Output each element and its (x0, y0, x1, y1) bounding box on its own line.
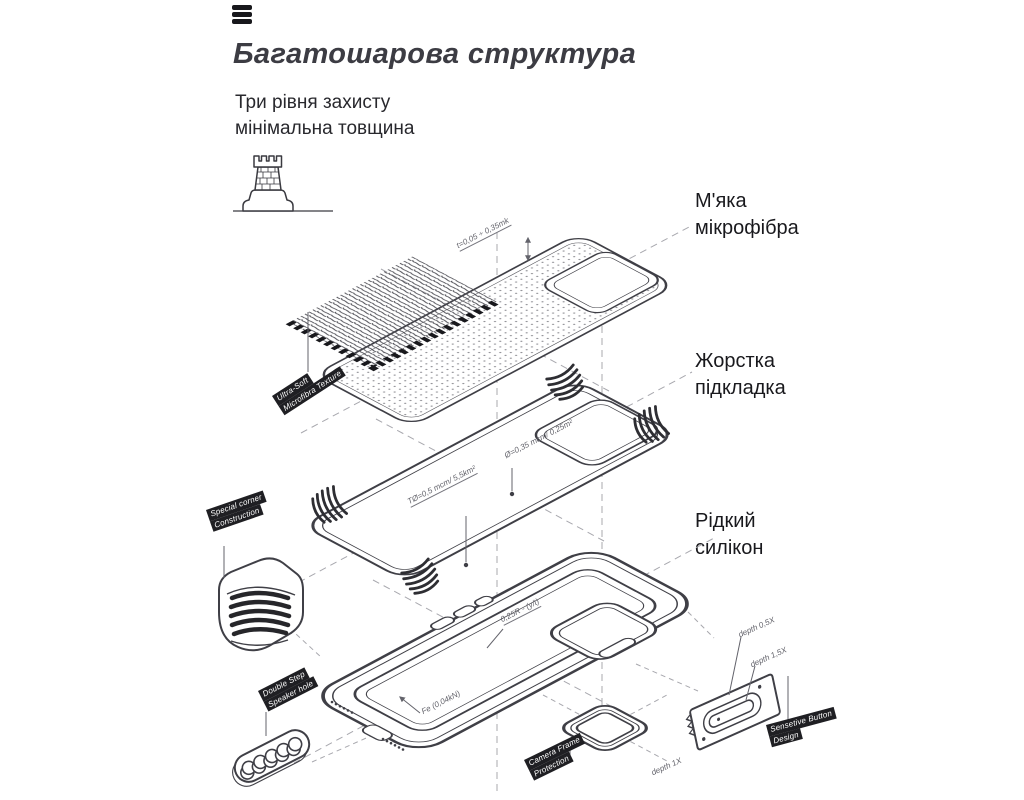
product-infographic: Багатошарова структура Три рівня захисту… (0, 0, 1024, 800)
fortress-tower-icon (233, 156, 333, 211)
hard-liner-layer (303, 380, 678, 580)
button-plate-piece (685, 674, 780, 753)
speaker-hole-piece (226, 725, 315, 791)
corner-bumper-piece (219, 558, 303, 650)
exploded-diagram (0, 0, 1024, 800)
